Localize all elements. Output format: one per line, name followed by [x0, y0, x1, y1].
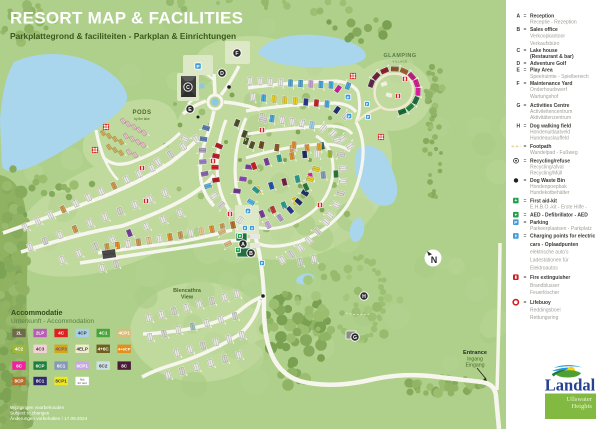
svg-text:=: = [524, 213, 527, 219]
svg-text:H: H [517, 124, 521, 130]
svg-text:Accommodatie: Accommodatie [11, 308, 63, 317]
svg-text:=: = [524, 124, 527, 130]
svg-text:=: = [524, 275, 527, 281]
svg-text:=: = [524, 144, 527, 150]
svg-text:Play Area: Play Area [530, 68, 553, 74]
svg-text:2L: 2L [16, 331, 22, 336]
svg-text:=: = [524, 103, 527, 109]
svg-text:4ELP: 4ELP [76, 347, 88, 352]
svg-text:2LP: 2LP [36, 331, 44, 336]
svg-text:Aktivitätenzentrum: Aktivitätenzentrum [530, 115, 571, 121]
svg-text:Verkaufsbüro: Verkaufsbüro [530, 41, 560, 47]
svg-text:Änderungen vorbehalten / 17.09: Änderungen vorbehalten / 17.09.2024 [10, 415, 88, 421]
svg-text:P: P [514, 220, 517, 225]
svg-text:P: P [347, 95, 350, 100]
svg-text:Blencathra: Blencathra [173, 288, 202, 294]
svg-text:Rettungsring: Rettungsring [530, 315, 559, 321]
svg-text:=: = [524, 14, 527, 20]
svg-text:VILLAGE: VILLAGE [392, 60, 407, 64]
svg-text:Parkplattegrond & faciliteiten: Parkplattegrond & faciliteiten - Parkpla… [10, 31, 236, 41]
svg-text:Wandelpad - Fußweg: Wandelpad - Fußweg [530, 150, 578, 156]
svg-text:Activiteitencentrum: Activiteitencentrum [530, 109, 572, 115]
svg-text:P: P [247, 209, 250, 214]
svg-text:D: D [517, 61, 521, 67]
svg-text:N: N [431, 255, 438, 265]
svg-text:Hundeauslauffeld: Hundeauslauffeld [530, 136, 569, 142]
svg-text:C: C [186, 85, 190, 91]
svg-text:Speelruimte - Spielbereich: Speelruimte - Spielbereich [530, 74, 589, 80]
svg-text:RESORT MAP & FACILITIES: RESORT MAP & FACILITIES [10, 9, 243, 28]
svg-text:Entrance: Entrance [463, 350, 487, 356]
svg-text:Receptie - Rezeption: Receptie - Rezeption [530, 20, 577, 26]
svg-text:4+6CP: 4+6CP [118, 347, 131, 352]
svg-text:Feuerlöscher: Feuerlöscher [530, 290, 560, 296]
svg-text:B: B [249, 251, 253, 257]
svg-text:for rent: for rent [78, 381, 87, 385]
svg-text:Subject to changes: Subject to changes [10, 411, 50, 416]
svg-text:6C: 6C [16, 363, 23, 368]
svg-text:B: B [517, 27, 521, 33]
svg-text:View: View [181, 295, 194, 301]
svg-text:C: C [517, 48, 521, 54]
svg-text:+: + [237, 248, 240, 253]
svg-text:H: H [362, 294, 366, 300]
svg-text:elektrische auto’s: elektrische auto’s [530, 250, 569, 256]
svg-text:P: P [196, 64, 199, 69]
svg-text:Adventure Golf: Adventure Golf [530, 61, 566, 67]
svg-text:Maintenance Yard: Maintenance Yard [530, 81, 572, 87]
svg-text:F: F [235, 51, 238, 57]
svg-text:(Restaurant & bar): (Restaurant & bar) [530, 54, 574, 60]
svg-text:Hundekotbehälter: Hundekotbehälter [530, 190, 570, 196]
svg-text:=: = [524, 220, 527, 226]
svg-text:=: = [524, 178, 527, 184]
svg-text:6CP: 6CP [36, 363, 45, 368]
svg-text:Unterkunft - Accommodation: Unterkunft - Accommodation [11, 318, 95, 325]
svg-text:Reddingsboei: Reddingsboei [530, 308, 561, 314]
svg-text:Activities Centre: Activities Centre [530, 103, 570, 109]
svg-text:Verkoopkantoor: Verkoopkantoor [530, 33, 565, 39]
svg-text:Wartungshof: Wartungshof [530, 94, 559, 100]
svg-text:6CP1: 6CP1 [76, 363, 88, 368]
svg-text:A: A [241, 242, 245, 248]
svg-text:Lifebuoy: Lifebuoy [530, 300, 551, 306]
svg-text:4C: 4C [58, 331, 65, 336]
svg-text:8CP: 8CP [15, 379, 24, 384]
svg-text:=: = [524, 81, 527, 87]
svg-text:6C2: 6C2 [99, 363, 108, 368]
svg-text:GLAMPING: GLAMPING [383, 53, 416, 59]
svg-text:6C1: 6C1 [57, 363, 66, 368]
svg-text:Parkeerplaatsen - Parkplatz: Parkeerplaatsen - Parkplatz [530, 226, 592, 232]
svg-text:Onderhoudswerf: Onderhoudswerf [530, 87, 568, 93]
svg-text:4C3: 4C3 [36, 347, 45, 352]
svg-text:Wijzigingen voorbehouden: Wijzigingen voorbehouden [10, 405, 65, 410]
svg-text:=: = [524, 300, 527, 306]
svg-text:E: E [188, 107, 192, 113]
svg-text:Lake house: Lake house [530, 48, 558, 54]
svg-text:Ullswater: Ullswater [566, 396, 592, 403]
svg-text:8CP1: 8CP1 [55, 379, 67, 384]
svg-text:4C1: 4C1 [99, 331, 108, 336]
svg-text:Ladestationen für: Ladestationen für [530, 258, 569, 264]
svg-text:=: = [524, 198, 527, 204]
svg-text:+: + [514, 198, 517, 204]
svg-text:Recycling/Müll: Recycling/Müll [530, 170, 562, 176]
svg-text:F: F [517, 81, 520, 87]
svg-text:E.H.B.O.-kit - Erste Hilfe -: E.H.B.O.-kit - Erste Hilfe - [530, 204, 587, 210]
svg-text:AED - Defibrillator - AED: AED - Defibrillator - AED [530, 213, 588, 219]
svg-text:=: = [524, 48, 527, 54]
svg-text:4CP3: 4CP3 [55, 347, 67, 352]
svg-text:=: = [524, 159, 527, 165]
svg-text:4C2: 4C2 [15, 347, 24, 352]
svg-text:Charging points for electric: Charging points for electric [530, 234, 596, 240]
svg-text:Elektroautos: Elektroautos [530, 265, 558, 271]
svg-text:D: D [220, 71, 224, 77]
svg-text:A: A [517, 14, 521, 20]
svg-text:4CP: 4CP [78, 331, 87, 336]
svg-text:Eingang: Eingang [465, 363, 484, 369]
svg-text:Heights: Heights [571, 403, 592, 410]
svg-text:Sales office: Sales office [530, 27, 558, 33]
svg-text:8C: 8C [121, 363, 128, 368]
svg-text:=: = [524, 234, 527, 240]
svg-text:G: G [353, 335, 357, 341]
svg-text:by the lake: by the lake [134, 117, 150, 121]
svg-text:Landal: Landal [545, 376, 596, 395]
svg-text:Fire extinguisher: Fire extinguisher [530, 275, 570, 281]
svg-text:G: G [517, 103, 521, 109]
svg-text:Hondenuitlaatveld: Hondenuitlaatveld [530, 130, 570, 136]
svg-text:=: = [524, 27, 527, 33]
svg-text:4CP1: 4CP1 [118, 331, 130, 336]
svg-text:8C1: 8C1 [36, 379, 45, 384]
svg-text:=: = [524, 68, 527, 74]
svg-text:Brandblusser: Brandblusser [530, 283, 560, 289]
svg-text:P: P [348, 114, 351, 119]
svg-text:cars - Oplaadpunten: cars - Oplaadpunten [530, 242, 578, 248]
svg-text:4+6C: 4+6C [98, 347, 110, 352]
svg-text:=: = [524, 61, 527, 67]
svg-text:PODS: PODS [132, 110, 151, 116]
